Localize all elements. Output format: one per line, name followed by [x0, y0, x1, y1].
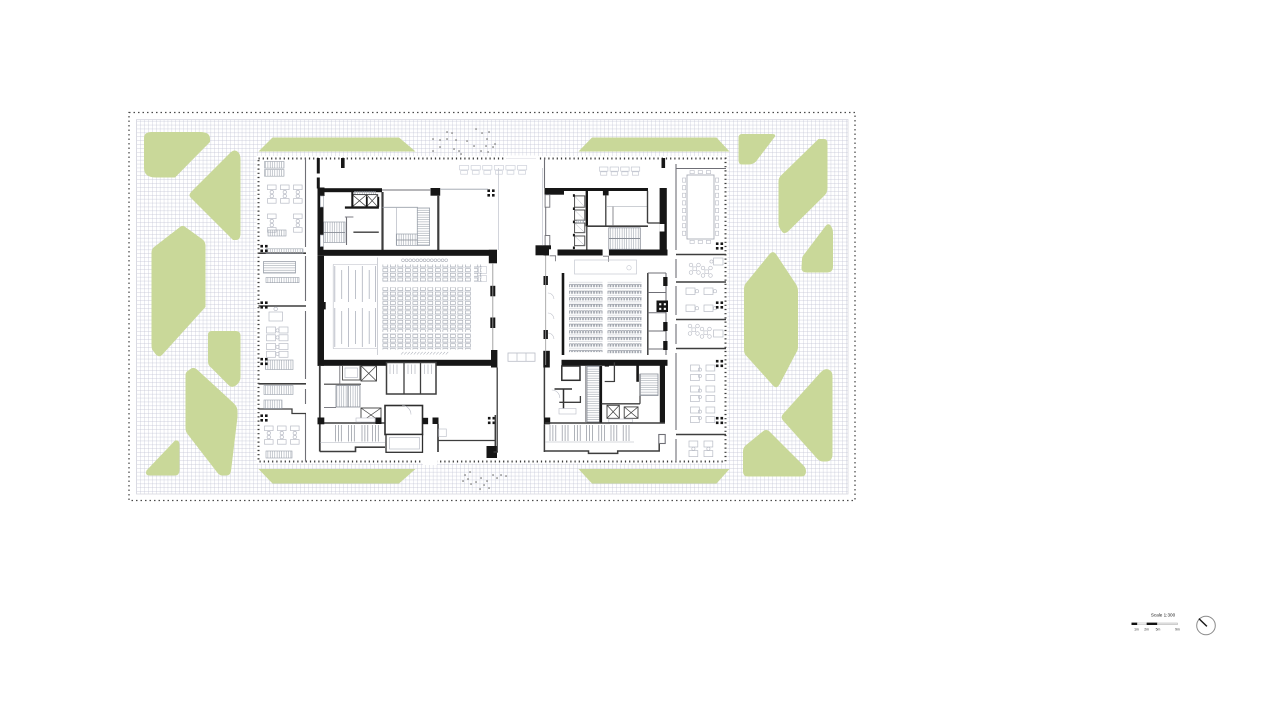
svg-text:5m: 5m	[1156, 628, 1161, 632]
svg-text:9m: 9m	[1175, 628, 1180, 632]
svg-text:2m: 2m	[1144, 628, 1149, 632]
svg-text:Scale 1:300: Scale 1:300	[1151, 613, 1176, 618]
svg-text:1m: 1m	[1134, 628, 1139, 632]
